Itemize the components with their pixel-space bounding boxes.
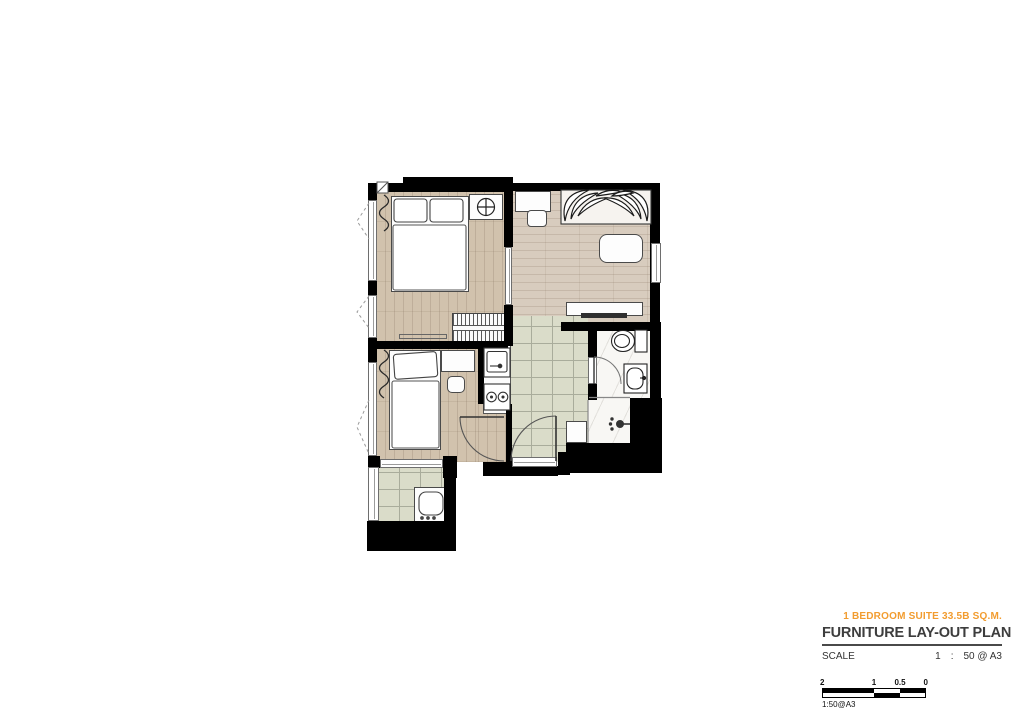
scale-bar: 2 1 0.5 0 1:50@A3 <box>822 678 926 709</box>
scale-bar-caption: 1:50@A3 <box>822 700 926 709</box>
scale-ratio: 1 : 50 @ A3 <box>935 651 1002 662</box>
balcony-sliding-door <box>368 467 379 521</box>
plan-title: FURNITURE LAY-OUT PLAN <box>822 625 1002 641</box>
scale-label: SCALE <box>822 651 855 662</box>
wall-segment <box>368 281 377 295</box>
title-block: 1 BEDROOM SUITE 33.5B SQ.M. FURNITURE LA… <box>822 611 1002 709</box>
wall-segment <box>483 462 512 476</box>
title-rule <box>822 644 1002 646</box>
wall-segment <box>630 398 662 473</box>
window <box>368 295 377 338</box>
wall-segment <box>558 452 570 475</box>
scale-tick: 0.5 <box>894 678 905 687</box>
wall-segment <box>566 443 630 473</box>
wall-segment <box>403 177 513 192</box>
shower-floor <box>588 398 630 443</box>
wall-segment <box>504 189 513 247</box>
scale-tick: 1 <box>872 678 876 687</box>
wall-segment <box>478 349 484 404</box>
wall-segment <box>504 305 513 346</box>
scale-ratio-numerator: 1 <box>935 651 941 662</box>
wall-segment <box>444 467 456 523</box>
wall-segment <box>650 322 661 400</box>
double-bed <box>391 196 469 292</box>
scale-bar-ticks: 2 1 0.5 0 <box>822 678 926 688</box>
wall-segment <box>512 466 558 476</box>
scale-bar-row <box>823 693 925 697</box>
living-chair <box>527 210 547 227</box>
washing-machine <box>414 487 447 523</box>
master-sliding-door <box>505 247 512 305</box>
wall-segment <box>368 183 377 200</box>
window <box>368 362 377 456</box>
wardrobe-shelf-line <box>453 325 507 331</box>
unit-label: 1 BEDROOM SUITE 33.5B SQ.M. <box>822 611 1002 622</box>
foot-bench <box>399 334 447 339</box>
scale-bar-rows <box>822 688 926 698</box>
bedroom2-balcony-sliding-door <box>380 459 443 468</box>
nightstand <box>469 194 503 220</box>
wall-segment <box>511 183 658 191</box>
television <box>581 313 627 318</box>
wardrobe-hanging-rail <box>452 313 508 342</box>
wall-segment <box>588 384 597 400</box>
scale-row: SCALE 1 : 50 @ A3 <box>822 651 1002 662</box>
entrance-threshold <box>512 457 557 467</box>
scale-ratio-separator: : <box>951 651 954 662</box>
living-desk <box>515 191 551 212</box>
bathroom-door-gap <box>588 357 597 384</box>
wall-segment <box>367 521 456 551</box>
scale-tick: 2 <box>820 678 824 687</box>
wall-segment <box>368 341 508 349</box>
floor-plan-sheet: 1 BEDROOM SUITE 33.5B SQ.M. FURNITURE LA… <box>0 0 1024 724</box>
shoe-cabinet <box>566 421 587 443</box>
wall-segment <box>506 404 512 462</box>
bathroom-floor <box>597 331 650 400</box>
wall-segment <box>561 322 658 331</box>
window <box>368 200 377 281</box>
single-bed <box>389 350 441 450</box>
scale-tick: 0 <box>924 678 928 687</box>
study-desk <box>441 350 475 372</box>
stool <box>447 376 465 393</box>
living-right-window <box>651 243 661 283</box>
scale-ratio-value: 50 @ A3 <box>963 651 1002 662</box>
wall-segment <box>588 331 597 357</box>
coffee-table <box>599 234 643 263</box>
